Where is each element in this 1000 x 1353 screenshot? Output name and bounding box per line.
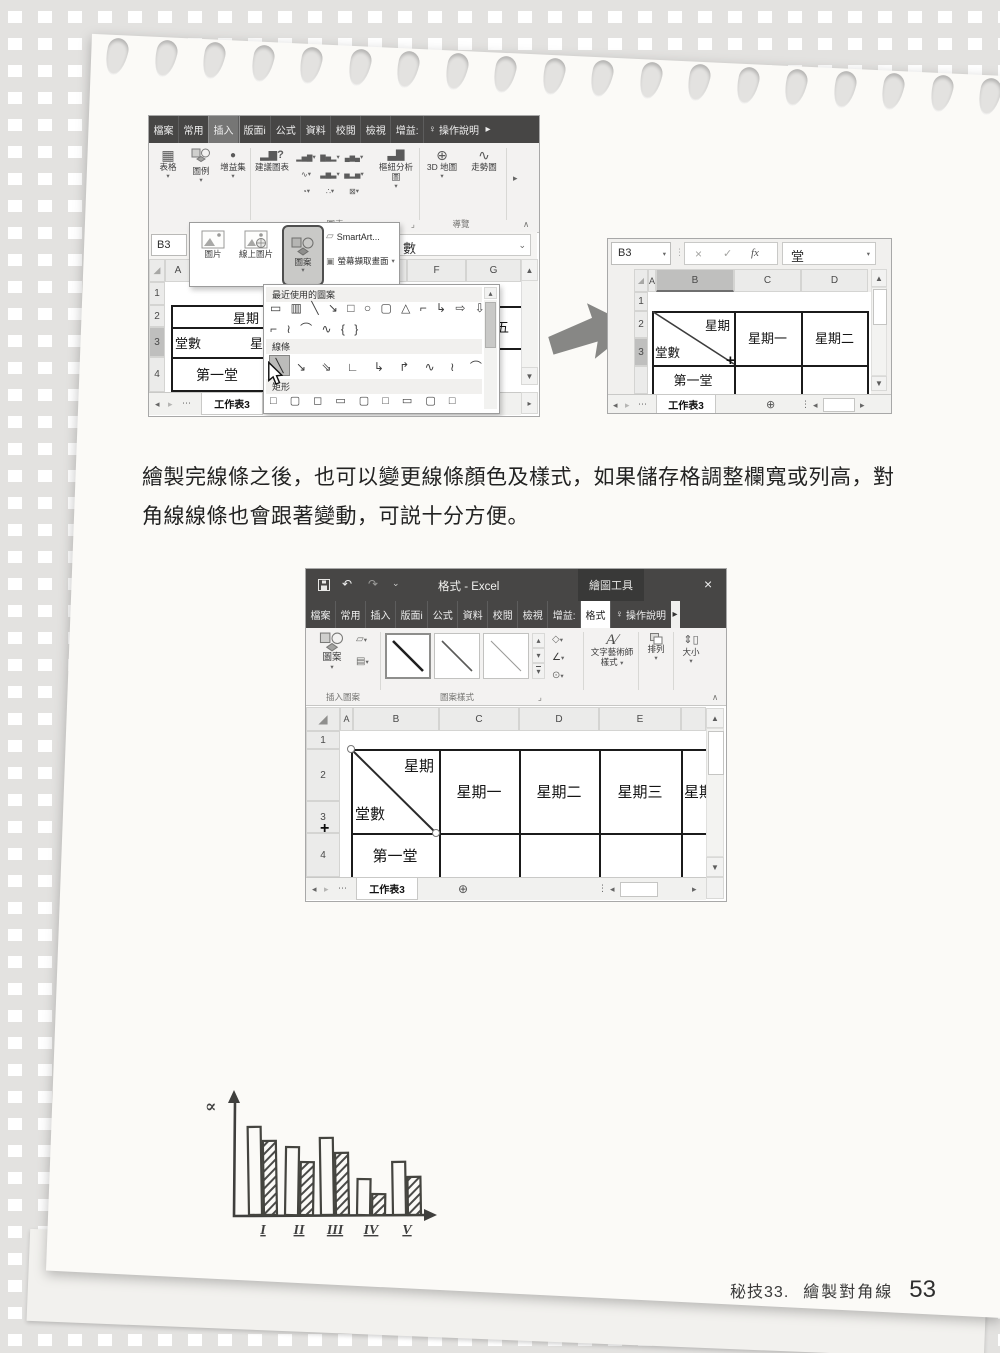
- cell-b4-value[interactable]: 第一堂: [351, 845, 439, 866]
- lightbulb-icon: ♀: [616, 609, 624, 620]
- column-header-b[interactable]: B: [353, 707, 439, 731]
- sheet-nav-right-icon[interactable]: ▸: [168, 399, 173, 410]
- cell-b2-value[interactable]: 星期: [364, 755, 434, 776]
- recent-shapes-section-label: 最近使用的圖案: [266, 287, 482, 302]
- scroll-down-icon: ▼: [875, 379, 883, 388]
- scroll-up-icon: ▲: [875, 274, 883, 283]
- title-bar: ↶ ↷ ⌄ 格式 - Excel 繪圖工具 ×: [306, 569, 726, 601]
- tab-data[interactable]: 資料: [301, 116, 331, 143]
- chevron-down-icon: ▾: [440, 173, 443, 180]
- scroll-up-button[interactable]: ▲: [521, 259, 538, 281]
- grip-dots-icon: ⋮: [598, 883, 607, 894]
- tab-addins[interactable]: 增益:: [548, 601, 581, 628]
- paragraph-line1: 繪製完線條之後，也可以變更線條顏色及樣式，如果儲存格調整欄寬或列高，對: [142, 458, 922, 497]
- binder-hole: [102, 36, 131, 77]
- formula-buttons: × ✓ fx: [684, 242, 778, 265]
- chart-type-gallery: ▂▅▇▾ ▇▅▂▾ ▄▆▄▾ ∿▾ ▃▆▃▾ ▅▂▅▾ ◔▾ ∴▾ ⊠▾: [294, 149, 372, 200]
- cell-b3-value[interactable]: 堂數: [355, 803, 385, 824]
- sheet-tab[interactable]: 工作表3: [656, 395, 716, 414]
- binder-hole: [345, 47, 374, 88]
- shapes-button[interactable]: 圖案 ▾: [312, 632, 352, 671]
- cell-d-value[interactable]: 星期二: [519, 781, 599, 802]
- tab-format[interactable]: 格式: [581, 601, 611, 628]
- column-header-d[interactable]: D: [801, 269, 868, 292]
- binder-hole: [684, 63, 713, 104]
- shape-style-2[interactable]: [434, 633, 480, 679]
- save-icon[interactable]: [318, 579, 330, 591]
- lines-section-label: 線條: [266, 339, 482, 354]
- hscroll-thumb[interactable]: [823, 398, 855, 412]
- tab-data[interactable]: 資料: [458, 601, 488, 628]
- ribbon-format: 圖案 ▾ ▱▾ ▤▾ ▴ ▾ ▾ ◇▾ ∠▾ ⊙▾ A∕: [306, 628, 726, 706]
- shape-outline-icon: ∠: [552, 652, 561, 663]
- text-box-button[interactable]: ▤▾: [356, 656, 369, 667]
- globe-icon: ⊕: [436, 148, 448, 163]
- tab-home[interactable]: 常用: [179, 116, 209, 143]
- paragraph-line2: 角線線條也會跟著變動，可説十分方便。: [142, 497, 922, 536]
- binder-hole: [490, 54, 519, 95]
- dialog-launcher-icon[interactable]: ⌟: [538, 692, 542, 703]
- pictures-button[interactable]: 圖片: [194, 230, 232, 259]
- illustrations-icon: [191, 148, 211, 167]
- row-header-1[interactable]: 1: [634, 292, 648, 311]
- illustrations-flyout: 圖片 線上圖片 圖案 ▾ ▱ SmartArt... ▣ 螢幕擷取畫面 ▾: [189, 222, 400, 287]
- tab-view[interactable]: 檢視: [361, 116, 391, 143]
- area-chart-icon[interactable]: ▄▆▄▾: [342, 149, 366, 166]
- shape-handle-end[interactable]: [432, 829, 440, 837]
- ribbon-tab-bar: 檔案 常用 插入 版面i 公式 資料 校閱 檢視 增益: ♀ 操作說明 ▸: [149, 116, 539, 143]
- size-button[interactable]: ⇕▯ 大小 ▾: [677, 633, 705, 665]
- doodle-bar: [263, 1141, 277, 1215]
- sheet-nav-more-icon[interactable]: ⋯: [638, 399, 647, 410]
- table-icon: ▦: [161, 148, 174, 163]
- fx-icon[interactable]: fx: [751, 247, 759, 259]
- size-icon: ⇕▯: [683, 633, 698, 648]
- row-header-3[interactable]: 3: [634, 338, 648, 366]
- up-arrow-icon: ▴: [488, 289, 492, 298]
- doodle-xaxis-arrowhead: [424, 1209, 437, 1221]
- binder-hole: [636, 60, 665, 101]
- mouse-cursor-icon: [267, 361, 285, 387]
- screenshot-drawing-format: ↶ ↷ ⌄ 格式 - Excel 繪圖工具 × 檔案 常用 插入 版面i 公式 …: [305, 568, 727, 902]
- doodle-bar: [300, 1162, 314, 1215]
- scrollbar-track[interactable]: [521, 281, 538, 367]
- new-sheet-icon[interactable]: ⊕: [766, 398, 775, 411]
- row-header-2[interactable]: 2: [149, 305, 165, 327]
- scroll-down-icon: ▼: [526, 372, 534, 381]
- column-chart-icon[interactable]: ▂▅▇▾: [294, 149, 318, 166]
- menu-scroll-up-button[interactable]: ▴: [484, 287, 497, 299]
- cell-d-value[interactable]: 星期二: [801, 328, 868, 347]
- column-header-a[interactable]: A: [648, 269, 656, 292]
- cell-b3-value[interactable]: 堂數: [655, 342, 680, 361]
- context-tab-title: 繪圖工具: [578, 569, 644, 601]
- chevron-down-icon: ▾: [199, 177, 202, 184]
- close-icon[interactable]: ×: [704, 576, 712, 592]
- tab-insert[interactable]: 插入: [366, 601, 396, 628]
- pivot-chart-button[interactable]: ▃▇ 樞紐分析圖 ▾: [375, 148, 417, 190]
- chevron-down-icon: ▾: [394, 183, 397, 190]
- tip-title: 繪製對角線: [803, 1278, 893, 1302]
- sheet-tab-bar: ◂ ▸ ⋯ 工作表3 ⊕ ⋮ ◂ ▸: [608, 394, 891, 414]
- shapes-button-highlighted[interactable]: 圖案 ▾: [282, 225, 324, 286]
- cell-c-value[interactable]: 星期一: [439, 781, 519, 802]
- select-all-icon: ◢: [638, 276, 644, 285]
- column-header-a[interactable]: A: [340, 707, 353, 731]
- hscroll-left-icon[interactable]: ◂: [813, 400, 818, 411]
- doodle-bar: [372, 1194, 385, 1215]
- tab-page-layout[interactable]: 版面i: [396, 601, 428, 628]
- select-all-corner[interactable]: ◢: [306, 707, 340, 731]
- binder-holes: [106, 38, 996, 118]
- select-all-icon: ◢: [318, 712, 327, 726]
- hscroll-left-icon[interactable]: ◂: [610, 884, 615, 895]
- radar-chart-icon[interactable]: ⊠▾: [342, 183, 366, 200]
- screenshot-diagonal-result: B3 ▾ ⋮ × ✓ fx 堂 ▾ ◢ A B C D 1 2 3: [607, 238, 892, 414]
- tab-page-layout[interactable]: 版面i: [239, 116, 271, 143]
- doodle-category-label: IV: [363, 1223, 380, 1238]
- recent-shapes-row2[interactable]: ⌐ ≀ ⌒ ∿ { }: [270, 320, 361, 337]
- tab-review[interactable]: 校閱: [488, 601, 518, 628]
- gallery-up-button[interactable]: ▴: [532, 633, 545, 648]
- dialog-launcher-icon[interactable]: ⌟: [411, 219, 415, 230]
- sheet-nav-left-icon[interactable]: ◂: [155, 399, 160, 410]
- chevron-down-icon: ▾: [231, 173, 234, 180]
- column-header-b[interactable]: B: [656, 269, 734, 292]
- sheet-nav-left-icon[interactable]: ◂: [613, 400, 618, 411]
- doodle-bar: [407, 1177, 421, 1215]
- smartart-button[interactable]: ▱ SmartArt...: [326, 231, 380, 242]
- column-header-g[interactable]: G: [466, 259, 521, 282]
- enter-icon[interactable]: ✓: [723, 247, 732, 260]
- row-header-3[interactable]: 3: [149, 327, 165, 357]
- formula-bar[interactable]: 堂 ▾: [782, 242, 876, 265]
- online-picture-icon: [244, 230, 268, 249]
- shape-fill-button[interactable]: ◇▾: [552, 634, 563, 645]
- scrollbar-track[interactable]: [871, 287, 887, 376]
- screenshot-icon: ▣: [326, 256, 335, 267]
- tab-tell-me[interactable]: ♀ 操作說明: [611, 601, 671, 628]
- edit-shape-icon: ▱: [356, 634, 364, 645]
- column-header-e[interactable]: E: [599, 707, 681, 731]
- scroll-up-icon: ▲: [526, 266, 534, 275]
- chevron-down-icon: ▾: [689, 658, 692, 665]
- doodle-bar: [335, 1153, 349, 1215]
- cell-b2-value[interactable]: 星期: [666, 315, 730, 334]
- formula-bar[interactable]: 數 ⌄: [398, 234, 531, 256]
- ribbon-more-arrow-icon[interactable]: ▸: [513, 173, 518, 184]
- arrange-button[interactable]: 排列 ▾: [642, 633, 670, 662]
- doodle-category-label: II: [293, 1223, 305, 1238]
- binder-hole: [296, 45, 325, 86]
- hierarchy-chart-icon[interactable]: ▅▂▅▾: [342, 166, 366, 183]
- binder-hole: [781, 67, 810, 108]
- undo-icon[interactable]: ↶: [342, 577, 352, 591]
- binder-hole: [878, 71, 907, 112]
- ribbon-insert: ▦ 表格 ▾ 圖例 ▾ ● 增益集 ▾ ▂▆? 建議圖表: [149, 143, 539, 233]
- scroll-up-button[interactable]: ▲: [871, 269, 887, 287]
- doodle-bar: [392, 1162, 406, 1215]
- doodle-bar: [248, 1127, 262, 1215]
- cell-e-value[interactable]: 星期三: [599, 781, 681, 802]
- rectangles-section-label: 矩形: [266, 379, 482, 394]
- tab-overflow-arrow-icon[interactable]: ▸: [484, 116, 493, 143]
- down-arrow-icon: ▾: [536, 651, 540, 660]
- insert-shapes-group-label: 插入圖案: [306, 691, 380, 703]
- binder-hole: [830, 69, 859, 110]
- recommended-charts-button[interactable]: ▂▆? 建議圖表: [254, 148, 290, 173]
- quick-access-dropdown-icon[interactable]: ⌄: [392, 578, 400, 589]
- column-header-d[interactable]: D: [519, 707, 599, 731]
- select-all-corner[interactable]: ◢: [634, 269, 648, 292]
- doodle-ylabel: ∝: [205, 1097, 216, 1116]
- tours-group-label: 導覽: [421, 218, 501, 230]
- doodle-bar: [285, 1147, 299, 1215]
- addin-icon: ●: [230, 148, 236, 163]
- tab-formulas[interactable]: 公式: [428, 601, 458, 628]
- chevron-down-icon: ▾: [654, 655, 657, 662]
- recent-shapes-row1[interactable]: ▭ ▥ ╲ ↘ □ ○ ▢ △ ⌐ ↳ ⇨ ⇩: [270, 301, 488, 315]
- cell-c-value[interactable]: 星期一: [734, 328, 801, 347]
- binder-hole: [151, 38, 180, 79]
- row-header-2[interactable]: 2: [634, 311, 648, 338]
- doodle-bar: [357, 1179, 371, 1215]
- sheet-tab[interactable]: 工作表3: [201, 393, 263, 415]
- collapse-ribbon-icon[interactable]: ∧: [712, 692, 718, 703]
- column-header-f[interactable]: F: [407, 259, 466, 282]
- new-sheet-icon[interactable]: ⊕: [458, 882, 468, 896]
- sheet-nav-more-icon[interactable]: ⋯: [338, 883, 347, 894]
- chevron-down-icon: ▾: [392, 258, 395, 265]
- ribbon-tab-bar: 檔案 常用 插入 版面i 公式 資料 校閱 檢視 增益: 格式 ♀ 操作說明 ▸: [306, 601, 726, 628]
- chevron-down-icon: ▾: [330, 664, 333, 671]
- shape-style-1-selected[interactable]: [385, 633, 431, 679]
- row-header-2[interactable]: 2: [306, 749, 340, 801]
- edit-shape-button[interactable]: ▱▾: [356, 634, 367, 645]
- column-header-c[interactable]: C: [439, 707, 519, 731]
- cell-c3-partial: 星: [250, 333, 263, 352]
- shapes-icon: [291, 237, 315, 257]
- name-box[interactable]: B3 ▾: [611, 242, 671, 265]
- picture-icon: [201, 230, 225, 249]
- scroll-down-button[interactable]: ▼: [871, 376, 887, 391]
- tab-file[interactable]: 檔案: [149, 116, 179, 143]
- scroll-down-button[interactable]: ▼: [521, 367, 538, 385]
- illustrations-button[interactable]: 圖例 ▾: [186, 148, 216, 184]
- scroll-down-icon: ▼: [711, 863, 719, 872]
- doodle-category-label: III: [326, 1223, 344, 1238]
- shape-style-3[interactable]: [483, 633, 529, 679]
- name-box-dropdown-icon[interactable]: ▾: [663, 251, 666, 258]
- shape-fill-icon: ◇: [552, 634, 560, 645]
- row-header-1[interactable]: 1: [306, 731, 340, 749]
- hscroll-right-icon[interactable]: ▸: [692, 884, 697, 895]
- addins-button[interactable]: ● 增益集 ▾: [219, 148, 247, 180]
- chevron-down-icon[interactable]: ▾: [867, 251, 870, 258]
- lightbulb-icon: ♀: [429, 124, 437, 135]
- binder-hole: [539, 56, 568, 97]
- hscroll-right-button[interactable]: ▸: [521, 392, 538, 414]
- book-page: 檔案 常用 插入 版面i 公式 資料 校閱 檢視 增益: ♀ 操作說明 ▸ ▦ …: [0, 0, 1000, 1353]
- scrollbar-thumb[interactable]: [708, 731, 724, 775]
- online-pictures-button[interactable]: 線上圖片: [232, 230, 280, 259]
- binder-hole: [733, 65, 762, 106]
- sheet-tab[interactable]: 工作表3: [356, 878, 418, 900]
- shapes-icon: [319, 632, 345, 653]
- hscroll-right-icon[interactable]: ▸: [860, 400, 865, 411]
- cancel-icon[interactable]: ×: [695, 247, 702, 261]
- cell-b3-value[interactable]: 堂數: [175, 333, 201, 352]
- more-styles-icon: ▾: [536, 666, 540, 676]
- binder-hole: [927, 74, 956, 115]
- grip-dots-icon: ⋮: [675, 247, 684, 258]
- cell-f-partial-value: 星期: [684, 781, 706, 802]
- hscroll-thumb[interactable]: [620, 882, 658, 897]
- cell-b4-value[interactable]: 第一堂: [652, 370, 734, 389]
- wordart-styles-button[interactable]: A∕ 文字藝術師 樣式 ▾: [587, 632, 637, 668]
- gallery-more-button[interactable]: ▾: [532, 663, 545, 679]
- formula-bar-expand-icon[interactable]: ⌄: [518, 240, 526, 251]
- scatter-chart-icon[interactable]: ∴▾: [318, 183, 342, 200]
- shape-styles-group-label: 圖案樣式: [383, 691, 531, 703]
- smartart-icon: ▱: [326, 231, 334, 242]
- grip-dots-icon: ⋮: [801, 399, 810, 410]
- rectangles-shapes-row[interactable]: □ ▢ ◻ ▭ ▢ □ ▭ ▢ □: [270, 394, 460, 407]
- binder-hole: [587, 58, 616, 99]
- shape-handle-start[interactable]: [347, 745, 355, 753]
- collapse-ribbon-icon[interactable]: ∧: [523, 219, 529, 230]
- scrollbar-track[interactable]: [706, 728, 724, 857]
- scroll-up-icon: ▲: [711, 714, 719, 723]
- tab-addins[interactable]: 增益:: [391, 116, 424, 143]
- body-paragraph: 繪製完線條之後，也可以變更線條顏色及樣式，如果儲存格調整欄寬或列高，對 角線線條…: [142, 458, 922, 536]
- binder-hole: [199, 41, 228, 82]
- line-chart-icon[interactable]: ∿▾: [294, 166, 318, 183]
- doodle-category-label: I: [259, 1223, 266, 1238]
- cell-b2-value[interactable]: 星期: [189, 308, 259, 327]
- sheet-nav-right-icon[interactable]: ▸: [625, 400, 630, 411]
- binder-hole: [248, 43, 277, 84]
- binder-hole: [393, 49, 422, 90]
- tab-home[interactable]: 常用: [336, 601, 366, 628]
- select-all-icon: ◢: [154, 265, 161, 276]
- tab-overflow-arrow-icon[interactable]: ▸: [671, 601, 680, 628]
- table-button[interactable]: ▦ 表格 ▾: [153, 148, 183, 180]
- recommended-chart-icon: ▂▆?: [260, 148, 284, 163]
- binder-hole: [442, 52, 471, 93]
- shape-outline-button[interactable]: ∠▾: [552, 652, 564, 663]
- pivot-chart-icon: ▃▇: [388, 148, 405, 163]
- formula-bar-text: 堂: [791, 246, 804, 265]
- crosshair-cursor-icon: +: [726, 355, 735, 367]
- menu-scrollbar-track[interactable]: [484, 300, 497, 409]
- chevron-down-icon: ▾: [166, 173, 169, 180]
- name-box[interactable]: B3: [151, 234, 187, 256]
- shapes-dropdown-menu: 最近使用的圖案 ▴ ▭ ▥ ╲ ↘ □ ○ ▢ △ ⌐ ↳ ⇨ ⇩ ⌐ ≀ ⌒ …: [263, 284, 500, 414]
- row-resize-cursor-icon: +: [320, 823, 329, 835]
- row-header-4[interactable]: 4: [306, 833, 340, 877]
- row-header-4[interactable]: 4: [149, 357, 165, 392]
- tab-formulas[interactable]: 公式: [271, 116, 301, 143]
- tab-tell-me[interactable]: ♀ 操作說明: [424, 116, 484, 143]
- sheet-nav-left-icon[interactable]: ◂: [312, 884, 317, 895]
- row-header-1[interactable]: 1: [149, 282, 165, 305]
- bar-chart-icon[interactable]: ▇▅▂▾: [318, 149, 342, 166]
- doodle-bar-chart: ∝ IIIIIIIVV: [183, 1082, 448, 1247]
- doodle-yaxis-arrowhead: [228, 1090, 240, 1103]
- doodle-bar: [320, 1138, 334, 1215]
- sparkline-button[interactable]: ∿ 走勢圖: [465, 148, 503, 173]
- gallery-down-button[interactable]: ▾: [532, 648, 545, 663]
- page-footer: 秘技33. 繪製對角線 53: [730, 1276, 936, 1304]
- tab-review[interactable]: 校閱: [331, 116, 361, 143]
- select-all-corner[interactable]: ◢: [149, 259, 165, 282]
- lines-shapes-row[interactable]: ↘ ⇘ ∟ ↳ ↱ ∿ ≀ ⌒: [296, 358, 488, 375]
- column-header-a[interactable]: A: [165, 259, 191, 282]
- 3d-map-button[interactable]: ⊕ 3D 地圖 ▾: [423, 148, 461, 180]
- sheet-nav-more-icon[interactable]: ⋯: [182, 398, 191, 409]
- tab-view[interactable]: 檢視: [518, 601, 548, 628]
- pie-chart-icon[interactable]: ◔▾: [294, 183, 318, 200]
- right-arrow-icon: ▸: [527, 399, 531, 408]
- up-arrow-icon: ▴: [536, 636, 540, 645]
- doodle-category-label: V: [402, 1223, 413, 1238]
- shape-effects-button[interactable]: ⊙▾: [552, 670, 564, 681]
- scroll-down-button[interactable]: ▼: [706, 857, 724, 877]
- sheet-tab-bar: ◂ ▸ ⋯ 工作表3 ⊕ ⋮ ◂ ▸: [306, 877, 706, 900]
- tip-number: 秘技33.: [730, 1278, 789, 1302]
- page-number: 53: [909, 1276, 936, 1304]
- window-title: 格式 - Excel: [438, 578, 499, 594]
- combo-chart-icon[interactable]: ▃▆▃▾: [318, 166, 342, 183]
- scroll-up-button[interactable]: ▲: [706, 708, 724, 728]
- cell-b4-value[interactable]: 第一堂: [177, 365, 257, 385]
- tab-insert[interactable]: 插入: [209, 116, 239, 143]
- chevron-down-icon: ▾: [301, 267, 304, 274]
- sheet-nav-right-icon[interactable]: ▸: [324, 884, 329, 895]
- column-header-c[interactable]: C: [734, 269, 801, 292]
- formula-bar-text: 數: [403, 238, 416, 257]
- sparkline-icon: ∿: [478, 148, 490, 163]
- scrollbar-thumb[interactable]: [873, 289, 887, 325]
- screenshot-insert-shapes-menu: 檔案 常用 插入 版面i 公式 資料 校閱 檢視 增益: ♀ 操作說明 ▸ ▦ …: [148, 115, 540, 417]
- wordart-icon: A∕: [606, 632, 618, 648]
- tab-file[interactable]: 檔案: [306, 601, 336, 628]
- screenshot-button[interactable]: ▣ 螢幕擷取畫面 ▾: [326, 255, 395, 267]
- redo-icon[interactable]: ↷: [368, 577, 378, 591]
